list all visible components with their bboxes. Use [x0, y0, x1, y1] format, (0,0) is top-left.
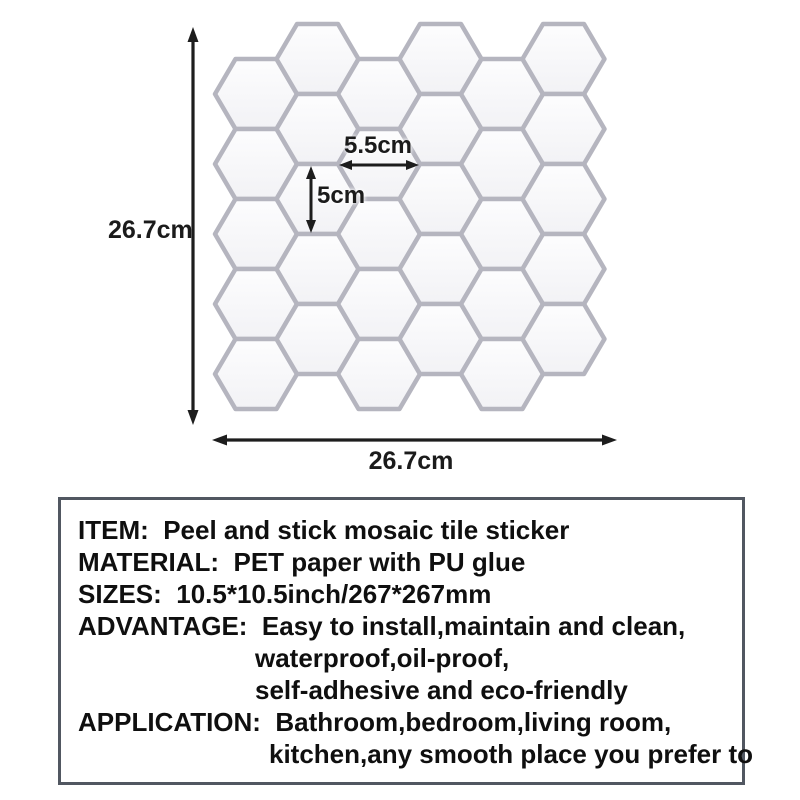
- arrowhead: [602, 435, 617, 446]
- spec-line-application: APPLICATION: Bathroom,bedroom,living roo…: [61, 706, 742, 738]
- arrowhead: [188, 27, 199, 42]
- product-infographic: 26.7cm 26.7cm 5.5cm 5cm ITEM: Peel and s…: [0, 0, 800, 800]
- hex-tile-height-label: 5cm: [317, 182, 377, 210]
- hex-tile-width-label: 5.5cm: [336, 132, 420, 160]
- tile-sheet: [215, 24, 605, 409]
- sheet-height-label: 26.7cm: [108, 216, 184, 245]
- spec-line-application-cont: kitchen,any smooth place you prefer to: [61, 738, 742, 770]
- hex-tile: [523, 94, 605, 164]
- spec-line-advantage-cont-2: self-adhesive and eco-friendly: [61, 674, 742, 706]
- arrowhead: [212, 435, 227, 446]
- sheet-width-label: 26.7cm: [361, 447, 461, 476]
- hex-tile: [523, 234, 605, 304]
- spec-line-sizes: SIZES: 10.5*10.5inch/267*267mm: [61, 578, 742, 610]
- spec-line-item: ITEM: Peel and stick mosaic tile sticker: [61, 514, 742, 546]
- product-spec-box: ITEM: Peel and stick mosaic tile sticker…: [58, 497, 745, 785]
- spec-line-advantage: ADVANTAGE: Easy to install,maintain and …: [61, 610, 742, 642]
- hex-tile: [523, 164, 605, 234]
- hex-tile: [523, 24, 605, 94]
- spec-line-advantage-cont-1: waterproof,oil-proof,: [61, 642, 742, 674]
- tile-sheet-diagram: [0, 0, 800, 490]
- hex-tile: [523, 304, 605, 374]
- sheet-width-arrow: [212, 435, 617, 446]
- arrowhead: [188, 410, 199, 425]
- spec-line-material: MATERIAL: PET paper with PU glue: [61, 546, 742, 578]
